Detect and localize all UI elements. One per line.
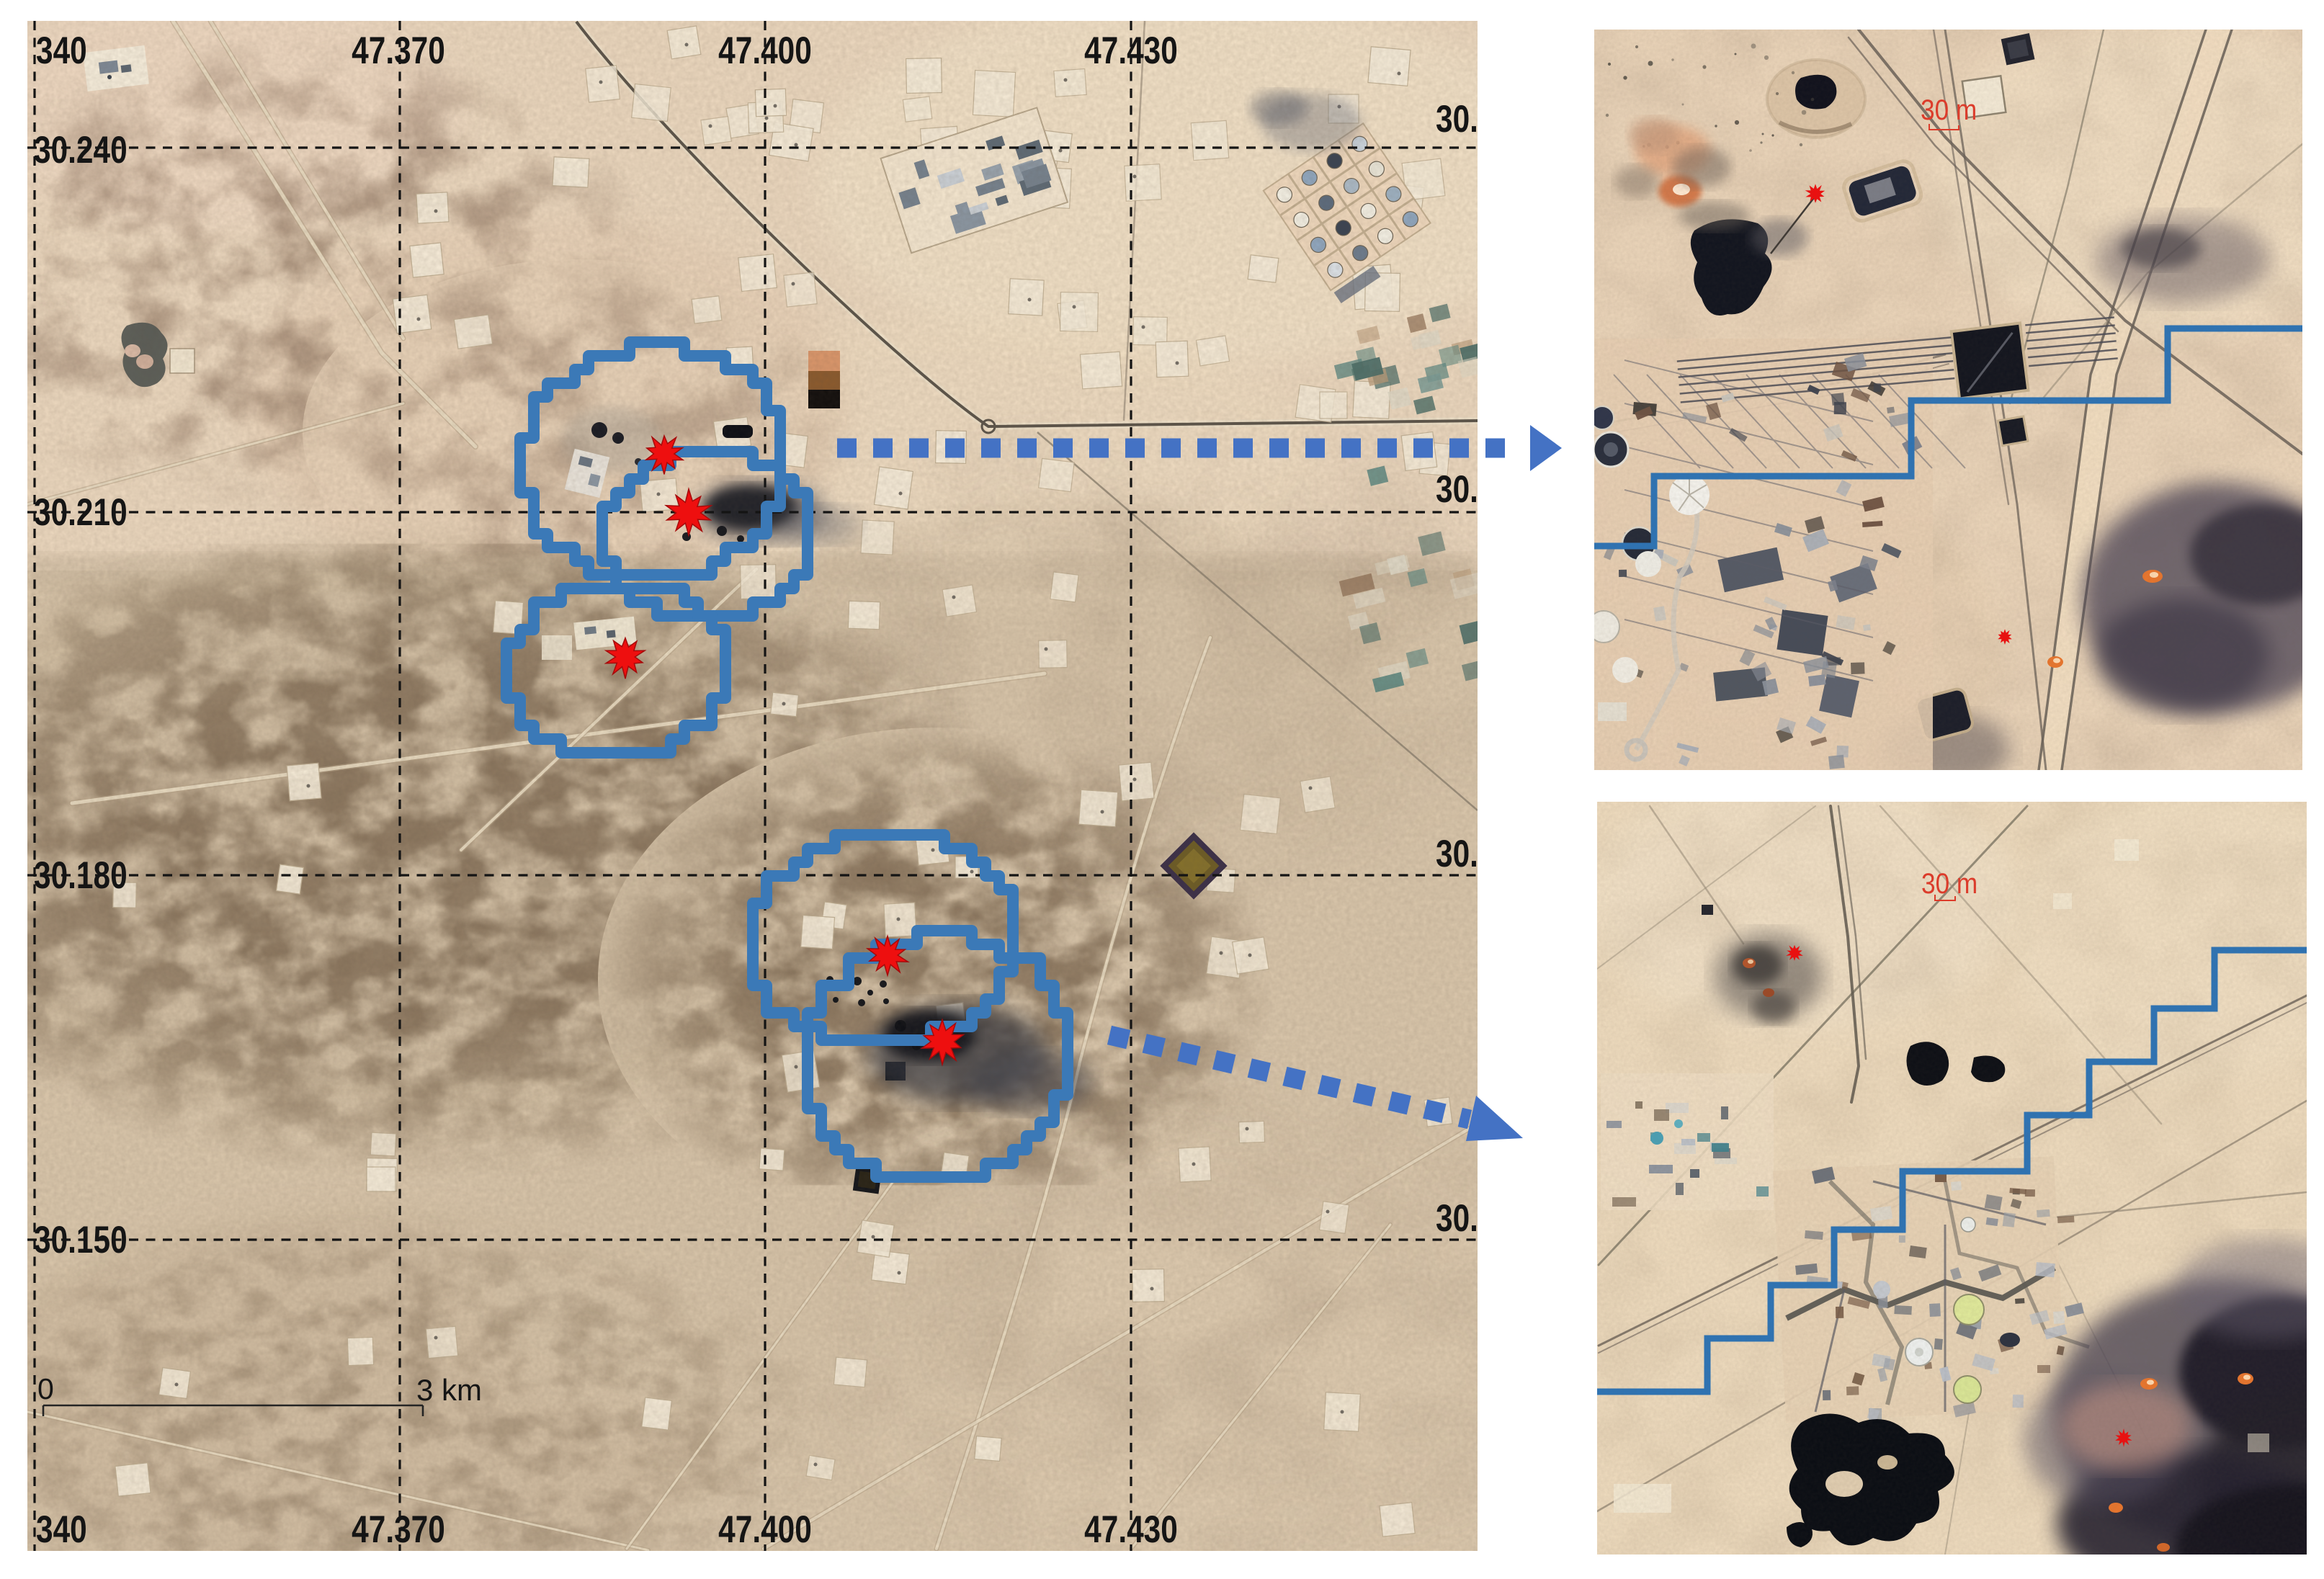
svg-text:30.210: 30.210: [1436, 469, 1478, 511]
svg-text:47.370: 47.370: [352, 30, 445, 73]
svg-text:30.240: 30.240: [1436, 99, 1478, 141]
svg-text:47.400: 47.400: [718, 1509, 812, 1551]
svg-text:47.430: 47.430: [1084, 1509, 1178, 1551]
svg-text:47.430: 47.430: [1084, 30, 1178, 73]
svg-text:30.180: 30.180: [34, 855, 128, 898]
svg-text:3 km: 3 km: [416, 1373, 482, 1407]
svg-text:47.400: 47.400: [718, 30, 812, 73]
svg-text:340: 340: [36, 1509, 87, 1551]
svg-text:0: 0: [37, 1372, 54, 1405]
svg-text:30.150: 30.150: [34, 1220, 128, 1262]
svg-text:340: 340: [36, 30, 87, 73]
svg-text:30.240: 30.240: [34, 130, 128, 172]
svg-text:30.210: 30.210: [34, 492, 128, 534]
svg-text:30.180: 30.180: [1436, 833, 1478, 876]
svg-text:30.150: 30.150: [1436, 1198, 1478, 1240]
svg-text:47.370: 47.370: [352, 1509, 445, 1551]
